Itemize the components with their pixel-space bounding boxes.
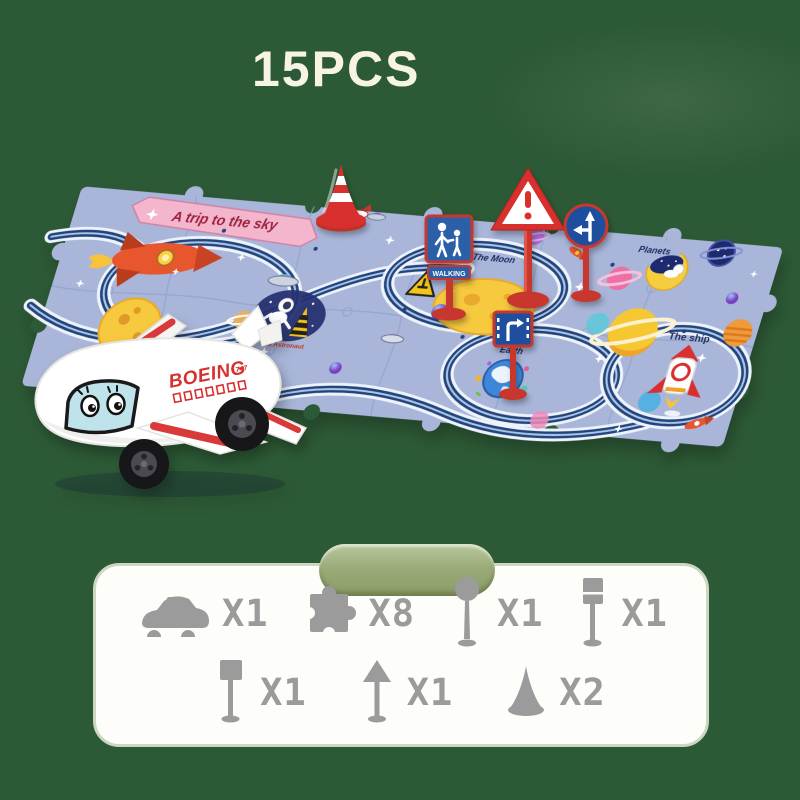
toy-airplane: BOEING 747 [20, 296, 310, 501]
round-arrow-sign-toy [560, 202, 612, 306]
part-qty: X1 [260, 671, 307, 714]
parts-panel: X1 X8 [93, 563, 709, 747]
rear-wheel [215, 397, 269, 451]
part-item-cone: X2 [505, 664, 606, 720]
car-icon [134, 589, 210, 637]
part-qty: X8 [368, 592, 415, 635]
part-item-triangle-sign: X1 [359, 658, 454, 726]
part-item-puzzle: X8 [302, 586, 415, 640]
square-sign-icon [214, 658, 248, 726]
part-item-round-sign: X1 [449, 576, 544, 650]
part-item-square-sign: X1 [214, 658, 307, 726]
rect-sign-icon [577, 576, 609, 650]
product-photo-stage: 15PCS [0, 0, 800, 800]
part-item-vehicle: X1 [134, 589, 269, 637]
page-title: 15PCS [252, 40, 420, 98]
part-qty: X1 [407, 671, 454, 714]
walking-sign-toy: WALKING [418, 214, 482, 322]
cone-icon [505, 664, 547, 720]
round-sign-icon [449, 576, 485, 650]
triangle-sign-icon [359, 658, 395, 726]
part-item-rect-sign: X1 [577, 576, 668, 650]
puzzle-piece-icon [302, 586, 356, 640]
part-qty: X1 [222, 592, 269, 635]
part-qty: X2 [559, 671, 606, 714]
part-qty: X1 [621, 592, 668, 635]
walking-sign-label: WALKING [432, 271, 466, 278]
windshield-face [66, 381, 138, 433]
turn-sign-toy [486, 310, 540, 406]
warning-sign-toy [488, 166, 568, 314]
traffic-cone-toy [312, 160, 370, 236]
front-wheel [119, 439, 169, 489]
part-qty: X1 [497, 592, 544, 635]
plane-shadow [55, 471, 285, 497]
